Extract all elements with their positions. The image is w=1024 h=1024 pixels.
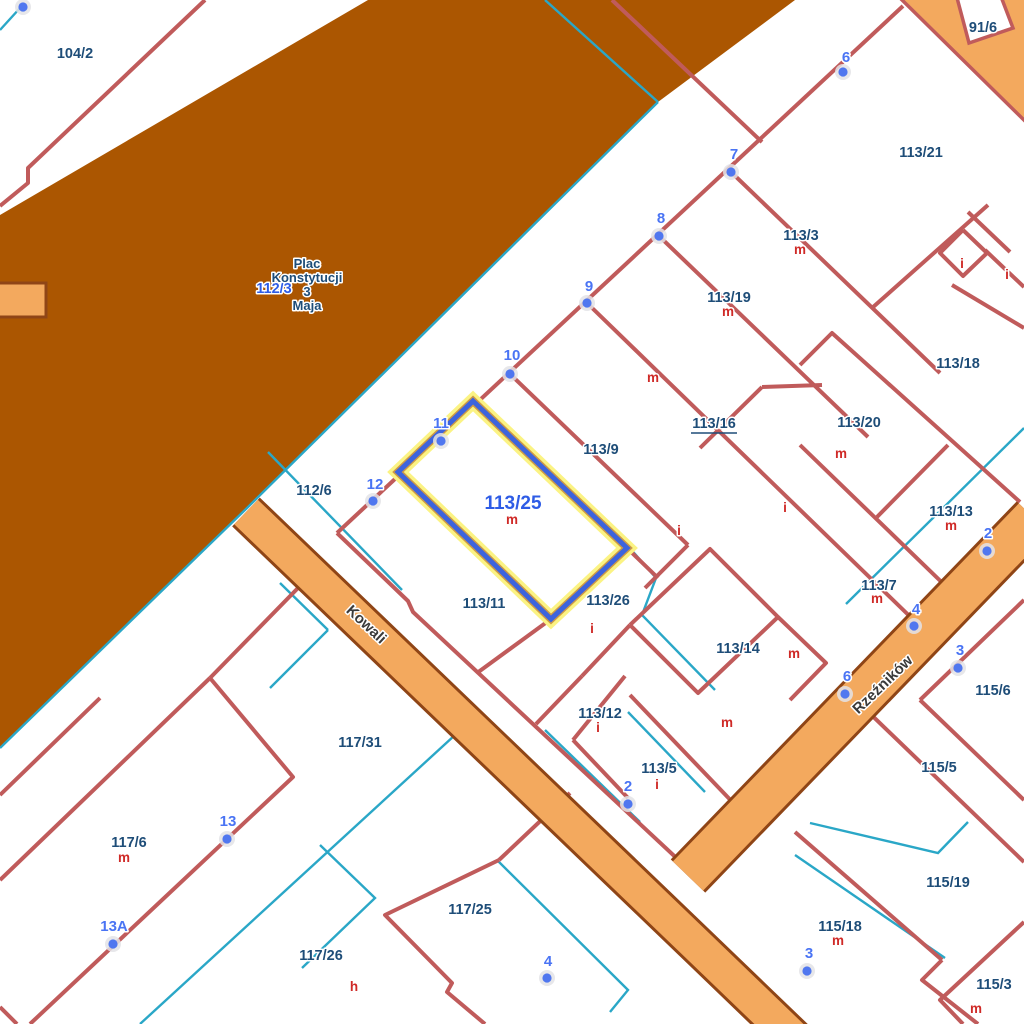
parcel-label: 112/6	[296, 483, 332, 499]
parcel-boundary-line	[210, 588, 298, 678]
parcel-label: 113/9	[583, 442, 619, 458]
address-point-dot[interactable]	[838, 67, 847, 76]
address-point-dot[interactable]	[726, 167, 735, 176]
address-point-dot[interactable]	[368, 496, 377, 505]
address-point-dot[interactable]	[505, 369, 514, 378]
parcel-label: 91/6	[969, 20, 997, 36]
utility-line	[270, 630, 328, 688]
address-number-label: 4	[912, 601, 921, 618]
parcel-label: 113/5	[641, 761, 677, 777]
parcel-label: 117/31	[338, 735, 382, 751]
building-usage-label: i	[655, 777, 659, 792]
plaza-name-line: 3	[303, 284, 310, 299]
address-number-label: 7	[730, 146, 738, 163]
address-number-label: 12	[367, 476, 384, 493]
parcel-label: 115/6	[975, 683, 1011, 699]
address-point-dot[interactable]	[953, 663, 962, 672]
address-number-label: 13A	[100, 918, 128, 935]
cadastral-map-viewport[interactable]: 104/291/6113/21113/3113/19113/18113/1611…	[0, 0, 1024, 1024]
address-point-dot[interactable]	[222, 834, 231, 843]
plaza-name-line: Konstytucji	[272, 270, 343, 285]
street-stub	[0, 283, 46, 317]
plaza-name-line: Maja	[293, 298, 323, 313]
parcel-boundary-line	[872, 205, 988, 308]
building-usage-label: m	[647, 370, 659, 385]
building-usage-label: i	[1005, 267, 1009, 282]
parcel-boundary-line	[778, 617, 826, 700]
plaza-name-line: Plac	[294, 256, 321, 271]
address-point-dot[interactable]	[982, 546, 991, 555]
utility-line	[810, 822, 968, 853]
utility-line	[628, 712, 705, 792]
parcel-boundary-line	[645, 545, 688, 588]
building-usage-label: h	[350, 979, 358, 994]
address-point-dot[interactable]	[542, 973, 551, 982]
parcel-boundary-line	[630, 695, 740, 810]
address-number-label: 6	[842, 49, 850, 66]
address-point-dot[interactable]	[654, 231, 663, 240]
address-number-label: 2	[984, 525, 992, 542]
building-usage-label: m	[970, 1001, 982, 1016]
parcel-boundary-line	[920, 700, 1024, 800]
selected-parcel-label: 113/25	[484, 493, 541, 514]
address-number-label: 13	[220, 813, 237, 830]
parcel-boundary-line	[858, 702, 1024, 862]
address-point-dot[interactable]	[802, 966, 811, 975]
parcel-label: 113/20	[837, 415, 881, 431]
parcel-boundary-line	[0, 1007, 17, 1024]
building-usage-label: m	[832, 933, 844, 948]
building-usage-label: i	[596, 720, 600, 735]
parcel-label: 117/25	[448, 902, 492, 918]
cadastral-map-canvas[interactable]: 104/291/6113/21113/3113/19113/18113/1611…	[0, 0, 1024, 1024]
parcel-label: 104/2	[57, 46, 93, 62]
building-usage-label: m	[721, 715, 733, 730]
parcel-label: 113/18	[936, 356, 980, 372]
parcel-label: 117/6	[111, 835, 147, 851]
address-number-label: 6	[843, 668, 851, 685]
building-usage-label: i	[783, 500, 787, 515]
building-usage-label: m	[118, 850, 130, 865]
building-usage-label: m	[835, 446, 847, 461]
building-usage-label: m	[871, 591, 883, 606]
parcel-boundary-line	[731, 172, 940, 373]
parcel-label: 113/11	[463, 596, 506, 612]
building-usage-label: i	[590, 621, 594, 636]
parcel-boundary-line	[762, 385, 822, 387]
address-number-label: 8	[657, 210, 665, 227]
selected-parcel-building-label: m	[506, 512, 518, 527]
building-usage-label: m	[794, 242, 806, 257]
parcel-boundary-line	[968, 212, 1010, 252]
address-number-label: 9	[585, 278, 593, 295]
utility-line	[140, 735, 455, 1024]
address-point-dot[interactable]	[18, 2, 27, 11]
address-point-dot[interactable]	[108, 939, 117, 948]
parcel-boundary-line	[385, 860, 499, 1024]
building-usage-label: m	[722, 304, 734, 319]
parcel-label: 115/5	[921, 760, 957, 776]
parcel-boundary-line	[536, 676, 582, 724]
address-number-label: 2	[624, 778, 632, 795]
address-point-dot[interactable]	[909, 621, 918, 630]
address-number-label: 10	[504, 347, 521, 364]
parcel-label: 115/19	[926, 875, 970, 891]
address-number-label: 3	[805, 945, 813, 962]
address-point-dot[interactable]	[582, 298, 591, 307]
parcel-boundary-line	[800, 445, 958, 598]
parcel-boundary-line	[795, 832, 942, 960]
building-usage-label: m	[788, 646, 800, 661]
parcel-label: 113/21	[899, 145, 943, 161]
parcel-label: 113/16	[692, 416, 736, 432]
building-usage-label: m	[945, 518, 957, 533]
address-point-dot[interactable]	[840, 689, 849, 698]
address-point-dot[interactable]	[436, 436, 445, 445]
parcel-label: 117/26	[299, 948, 343, 964]
address-number-label: 3	[956, 642, 964, 659]
parcel-label: 113/12	[578, 706, 622, 722]
parcel-label: 113/14	[716, 641, 760, 657]
address-number-label: 11	[433, 415, 449, 432]
parcel-label: 113/26	[586, 593, 630, 609]
parcel-boundary-line	[477, 619, 551, 673]
address-point-dot[interactable]	[623, 799, 632, 808]
address-number-label: 4	[544, 953, 553, 970]
building-usage-label: i	[677, 523, 681, 538]
parcel-boundary-line	[952, 285, 1024, 328]
street-rzeźników[interactable]	[688, 518, 1024, 876]
building-usage-label: i	[960, 256, 964, 271]
parcel-label: 115/3	[976, 977, 1012, 993]
